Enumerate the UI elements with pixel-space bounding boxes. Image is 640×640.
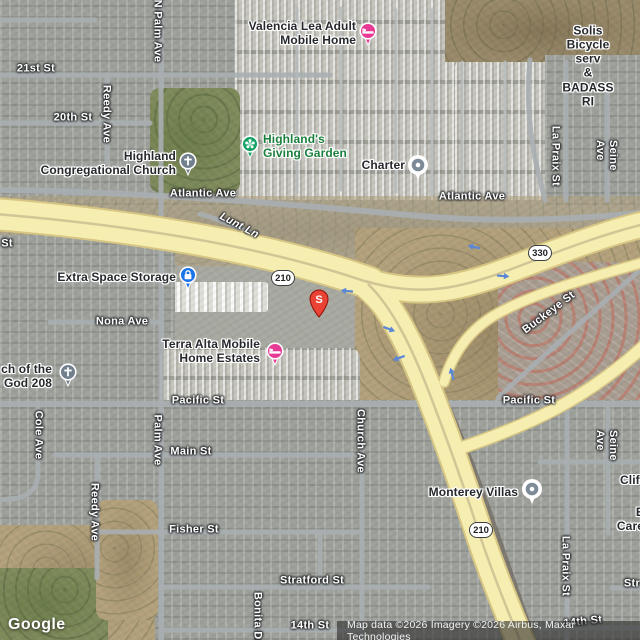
street-label-reedy-ave-top: Reedy Ave <box>100 85 113 143</box>
street-label-cole-ave: Cole Ave <box>32 411 45 460</box>
poi-label-congregational-church[interactable]: Highland Congregational Church <box>41 149 176 177</box>
poi-label-charter[interactable]: Charter <box>362 158 405 172</box>
search-result-marker-s[interactable]: S <box>308 288 330 323</box>
street-label-bonita-dr: Bonita Dr <box>251 592 264 640</box>
lodging-pin-terra-alta[interactable] <box>265 342 285 372</box>
street-label-seine-ave-bottom: Seine Ave <box>593 430 619 464</box>
lodging-pin-valencia[interactable] <box>358 22 378 52</box>
poi-label-church-of-god[interactable]: ch of the God 208 <box>1 362 52 390</box>
street-label-atlantic-ave-right: Atlantic Ave <box>439 191 505 204</box>
street-label-fisher-st: Fisher St <box>169 524 219 537</box>
street-label-21st-st: 21st St <box>17 63 55 76</box>
church-pin-congregational[interactable] <box>178 152 198 182</box>
street-label-la-praix-st-bottom: La Praix St <box>559 536 572 596</box>
route-shield-210-west: 210 <box>271 270 295 286</box>
svg-text:S: S <box>315 294 322 306</box>
street-label-la-praix-st-top: La Praix St <box>549 126 562 186</box>
generic-pin-monterey-villas[interactable] <box>520 477 544 511</box>
attribution-text: Map data ©2026 Imagery ©2026 Airbus, Max… <box>347 619 634 640</box>
google-logo[interactable]: Google <box>8 616 66 634</box>
poi-label-terra-alta[interactable]: Terra Alta Mobile Home Estates <box>162 337 260 365</box>
street-label-church-ave: Church Ave <box>354 409 367 473</box>
street-label-14th-st: 14th St <box>291 620 330 633</box>
generic-pin-charter[interactable] <box>406 153 430 187</box>
street-label-pacific-st-left: Pacific St <box>172 395 225 408</box>
street-label-main-st: Main St <box>170 446 211 459</box>
street-label-stratford-st: Stratford St <box>280 575 344 588</box>
street-label-n-palm-ave: N Palm Ave <box>151 0 164 62</box>
route-shield-210-south: 210 <box>469 522 493 538</box>
street-label-palm-ave: Palm Ave <box>151 414 164 465</box>
poi-label-monterey-villas[interactable]: Monterey Villas <box>429 485 518 499</box>
poi-label-extra-space-storage[interactable]: Extra Space Storage <box>57 270 176 284</box>
map-canvas[interactable]: 21st St 20th St N Palm Ave Reedy Ave Atl… <box>0 0 640 640</box>
storage-pin-extra-space[interactable] <box>178 266 198 296</box>
map-attribution: Map data ©2026 Imagery ©2026 Airbus, Max… <box>337 621 640 640</box>
poi-label-giving-garden[interactable]: Highland's Giving Garden <box>263 132 347 160</box>
street-label-20th-st: 20th St <box>54 112 93 125</box>
street-label-seine-ave-top: Seine Ave <box>593 140 619 174</box>
garden-pin-giving-garden[interactable] <box>240 135 260 165</box>
route-shield-330: 330 <box>528 245 552 261</box>
street-label-reedy-ave-bottom: Reedy Ave <box>88 483 101 541</box>
poi-label-valencia-lea[interactable]: Valencia Lea Adult Mobile Home <box>249 19 356 47</box>
street-label-pacific-st-right: Pacific St <box>503 395 556 408</box>
poi-label-care-partial[interactable]: E Care <box>617 505 640 533</box>
street-label-st-partial: St <box>1 238 13 251</box>
street-label-atlantic-ave-left: Atlantic Ave <box>170 188 236 201</box>
poi-label-solis-bicycle[interactable]: Solis Bicycle serv & BADASS RI <box>562 24 614 109</box>
street-label-nona-ave: Nona Ave <box>96 316 148 329</box>
street-label-stratford-partial: Str <box>624 578 640 591</box>
church-pin-church-of-god[interactable] <box>58 363 78 393</box>
poi-label-clift-partial[interactable]: Clift <box>620 473 640 487</box>
